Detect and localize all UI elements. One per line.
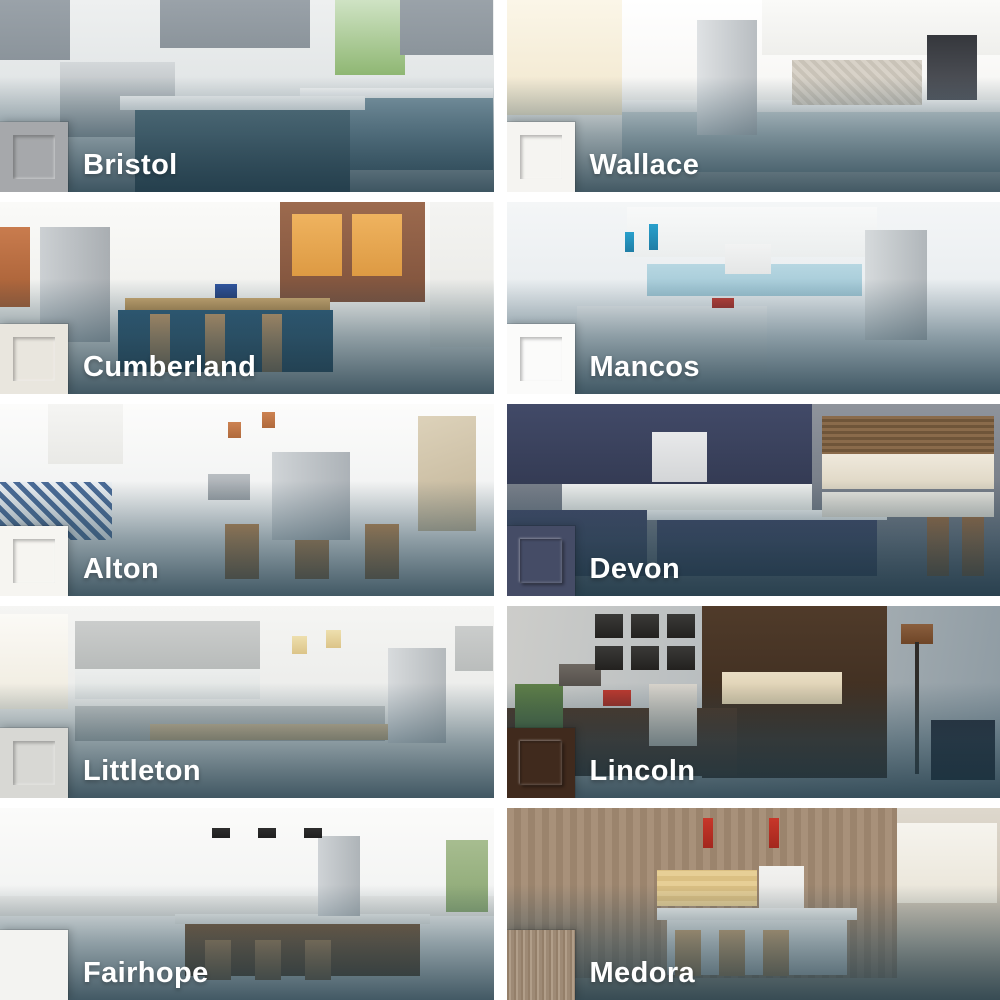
door-swatch: [0, 324, 68, 394]
door-swatch-panel: [13, 539, 55, 583]
door-swatch-panel: [520, 135, 562, 179]
style-tile-cumberland[interactable]: Cumberland: [0, 202, 494, 394]
style-tile-fairhope[interactable]: Fairhope: [0, 808, 494, 1000]
door-swatch: [507, 122, 575, 192]
kitchen-photo-wallace: [507, 0, 1000, 192]
kitchen-photo-devon: [507, 404, 1000, 596]
kitchen-photo-lincoln: [507, 606, 1000, 798]
style-tile-littleton[interactable]: Littleton: [0, 606, 494, 798]
door-swatch: [0, 728, 68, 798]
kitchen-photo-cumberland: [0, 202, 494, 394]
style-tile-medora[interactable]: Medora: [507, 808, 1000, 1000]
door-swatch: [0, 930, 68, 1000]
door-swatch-panel: [520, 741, 562, 785]
style-tile-bristol[interactable]: Bristol: [0, 0, 494, 192]
kitchen-photo-mancos: [507, 202, 1000, 394]
door-swatch-panel: [13, 135, 55, 179]
style-tile-devon[interactable]: Devon: [507, 404, 1000, 596]
door-swatch: [0, 526, 68, 596]
door-swatch: [0, 122, 68, 192]
cabinet-style-grid: Bristol Wallace Cumberland Mancos Alton: [0, 0, 1000, 1000]
style-tile-mancos[interactable]: Mancos: [507, 202, 1000, 394]
kitchen-photo-fairhope: [0, 808, 494, 1000]
kitchen-photo-littleton: [0, 606, 494, 798]
door-swatch-panel: [13, 741, 55, 785]
door-swatch: [507, 324, 575, 394]
door-swatch: [507, 930, 575, 1000]
door-swatch-panel: [520, 539, 562, 583]
style-tile-lincoln[interactable]: Lincoln: [507, 606, 1000, 798]
kitchen-photo-medora: [507, 808, 1000, 1000]
door-swatch-panel: [13, 337, 55, 381]
kitchen-photo-bristol: [0, 0, 494, 192]
kitchen-photo-alton: [0, 404, 494, 596]
style-tile-wallace[interactable]: Wallace: [507, 0, 1000, 192]
style-tile-alton[interactable]: Alton: [0, 404, 494, 596]
door-swatch-panel: [520, 337, 562, 381]
door-swatch: [507, 728, 575, 798]
door-swatch: [507, 526, 575, 596]
